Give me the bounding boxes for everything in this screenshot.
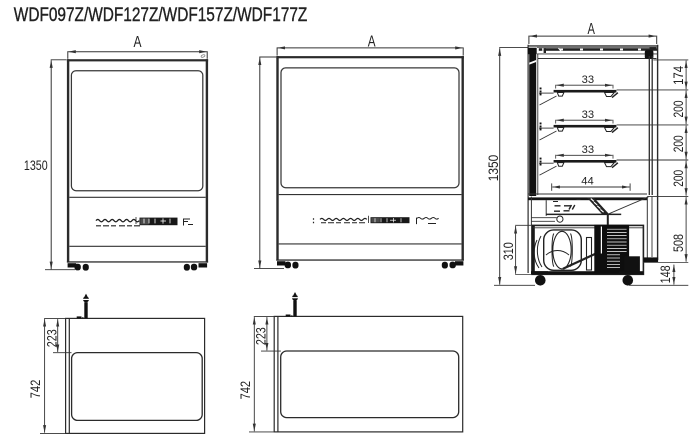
svg-text:200: 200 <box>671 135 686 152</box>
svg-text:1350: 1350 <box>24 158 48 173</box>
svg-text:742: 742 <box>28 380 43 399</box>
svg-text:174: 174 <box>671 65 686 84</box>
svg-text:200: 200 <box>671 170 686 187</box>
svg-text:223: 223 <box>254 327 269 345</box>
svg-text:33: 33 <box>582 109 594 121</box>
svg-text:A: A <box>134 34 143 51</box>
svg-text:310: 310 <box>501 242 516 260</box>
svg-text:WDF097Z/WDF127Z/WDF157Z/WDF177: WDF097Z/WDF127Z/WDF157Z/WDF177Z <box>14 4 308 26</box>
svg-text:742: 742 <box>238 381 253 400</box>
svg-text:33: 33 <box>582 74 594 86</box>
svg-text:44: 44 <box>581 175 593 187</box>
svg-text:33: 33 <box>582 144 594 156</box>
svg-text:148: 148 <box>658 265 673 283</box>
svg-text:200: 200 <box>671 101 686 118</box>
svg-text:1350: 1350 <box>486 155 501 181</box>
svg-text:508: 508 <box>671 234 686 252</box>
